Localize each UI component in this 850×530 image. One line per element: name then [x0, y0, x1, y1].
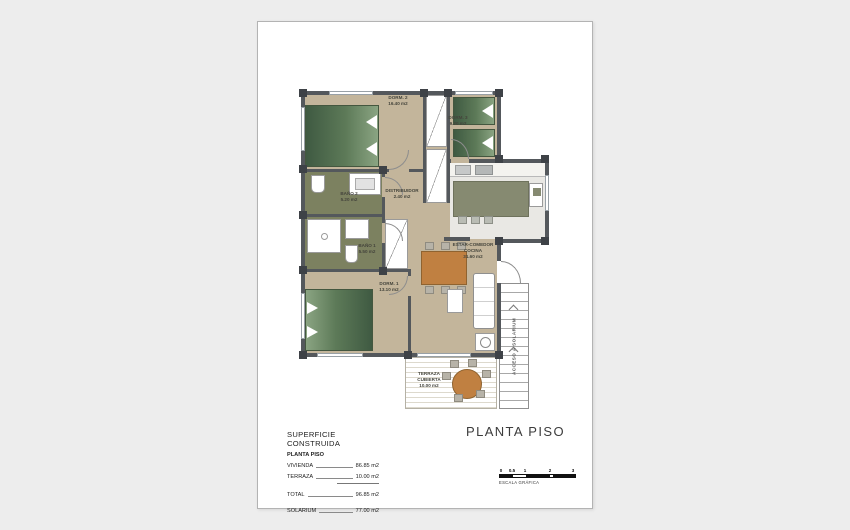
summary-row: TOTAL 96.85 m2	[287, 492, 379, 498]
bar-stool	[458, 216, 467, 224]
kitchen-stove	[475, 165, 493, 175]
room-label-estar-comedor: ESTAR-COMEDOR COCINA 31.60 m2	[453, 242, 494, 261]
pillow-icon	[482, 136, 493, 150]
terrace-chair	[450, 360, 459, 368]
pillar	[420, 89, 428, 97]
kitchen-side-sink	[529, 183, 543, 207]
scale-caption: ESCALA GRÁFICA	[499, 480, 576, 485]
door-opening	[451, 159, 469, 163]
room-area: 2.40 m2	[385, 194, 418, 200]
room-area: 13.10 m2	[379, 287, 398, 293]
wall-segment	[409, 169, 423, 172]
scale-tick: 1	[524, 468, 527, 473]
pillar	[299, 165, 307, 173]
surface-summary: SUPERFICIE CONSTRUIDA PLANTA PISO VIVIEN…	[287, 430, 379, 514]
pillar	[299, 351, 307, 359]
scale-segment	[500, 475, 513, 477]
pillow-icon	[366, 142, 377, 156]
summary-row: VIVIENDA 86.85 m2	[287, 463, 379, 469]
scale-tick: 3	[572, 468, 575, 473]
terrace-chair	[454, 394, 463, 402]
dining-chair	[425, 242, 434, 250]
scale-segment	[553, 475, 575, 477]
dorm1-double-bed	[305, 289, 373, 351]
scale-segment	[513, 475, 526, 477]
dorm2-double-bed	[305, 105, 379, 167]
terrace-chair	[468, 359, 477, 367]
leader-line	[316, 478, 353, 479]
leader-line	[308, 496, 353, 497]
wall-segment	[497, 91, 501, 163]
row-value: 86.85 m2	[356, 463, 379, 469]
room-label-dorm2: DORM. 2 16.40 m2	[388, 95, 407, 107]
room-area: 5.20 m2	[340, 197, 357, 203]
row-value: 10.00 m2	[356, 474, 379, 480]
pillow-icon	[307, 326, 318, 338]
room-label-dorm3: DORM. 3 9.20 m2	[448, 115, 467, 127]
scale-tick: 0.5	[509, 468, 515, 473]
leader-line	[316, 467, 353, 468]
pillar	[379, 166, 387, 174]
toilet	[311, 175, 325, 193]
pillow-icon	[482, 104, 493, 118]
scale-tick: 0	[500, 468, 503, 473]
kitchen-island	[453, 181, 529, 217]
window-opening	[301, 293, 305, 339]
summary-subtitle: PLANTA PISO	[287, 452, 379, 458]
sofa	[473, 273, 495, 329]
side-table	[475, 333, 495, 351]
pillar	[299, 89, 307, 97]
sink-basin	[355, 178, 375, 190]
wall-segment	[444, 237, 470, 241]
terrace-chair	[476, 390, 485, 398]
pillar	[299, 211, 307, 219]
lamp-icon	[480, 337, 491, 348]
room-area: 16.40 m2	[388, 101, 407, 107]
stair-label: ACCESO A SOLARIUM	[500, 284, 528, 408]
screenshot-canvas: ACCESO A SOLARIUM	[0, 0, 850, 530]
shower-drain-icon	[321, 233, 328, 240]
floor-plan-drawing: ACCESO A SOLARIUM	[301, 91, 551, 413]
door-opening	[408, 276, 411, 296]
room-label-bano2: BAÑO 2 5.20 m2	[340, 191, 357, 203]
kitchen-sink	[455, 165, 471, 175]
pillar	[444, 89, 452, 97]
wall-segment	[301, 269, 411, 272]
room-label-bano1: BAÑO 1 5.50 m2	[358, 243, 375, 255]
wardrobe	[426, 149, 447, 203]
bar-stool	[484, 216, 493, 224]
summary-title: SUPERFICIE CONSTRUIDA	[287, 430, 379, 448]
scale-tick: 2	[549, 468, 552, 473]
row-label: VIVIENDA	[287, 463, 313, 469]
wall-segment	[301, 169, 389, 172]
room-label-distribuidor: DISTRIBUIDOR 2.40 m2	[385, 188, 418, 200]
sum-divider	[337, 483, 379, 484]
summary-row: SOLARIUM 77.00 m2	[287, 508, 379, 514]
row-label: TOTAL	[287, 492, 305, 498]
wardrobe	[426, 95, 447, 147]
pillar	[495, 351, 503, 359]
room-label-dorm1: DORM. 1 13.10 m2	[379, 281, 398, 293]
scale-segment	[526, 475, 550, 477]
scale-ticks: 0 0.5 1 2 3	[499, 468, 576, 474]
pillar	[379, 267, 387, 275]
dining-chair	[425, 286, 434, 294]
pillow-icon	[366, 115, 377, 129]
door-arc	[501, 261, 521, 283]
pillar	[404, 351, 412, 359]
shower	[307, 219, 341, 253]
room-area: 5.50 m2	[358, 249, 375, 255]
window-opening	[545, 175, 549, 211]
window-opening	[301, 107, 305, 151]
page-title: PLANTA PISO	[466, 424, 565, 439]
pillar	[541, 237, 549, 245]
terrace-chair	[442, 372, 451, 380]
plan-sheet: ACCESO A SOLARIUM	[257, 21, 593, 509]
row-value: 77.00 m2	[356, 508, 379, 514]
terrace-chair	[482, 370, 491, 378]
room-label-terraza: TERRAZA CUBIERTA 10.00 m2	[417, 371, 440, 390]
toilet	[345, 245, 358, 263]
bathroom-sink	[345, 219, 369, 239]
window-opening	[455, 91, 493, 95]
pillar	[495, 237, 503, 245]
summary-row: TERRAZA 10.00 m2	[287, 474, 379, 480]
sliding-door-opening	[417, 353, 471, 357]
wall-segment	[423, 91, 426, 203]
wall-segment	[447, 91, 450, 203]
pillar	[299, 266, 307, 274]
room-area: 31.60 m2	[453, 254, 494, 260]
pillar	[495, 155, 503, 163]
pillow-icon	[307, 302, 318, 314]
graphic-scale: 0 0.5 1 2 3 ESCALA GRÁFICA	[499, 468, 576, 485]
row-label: SOLARIUM	[287, 508, 316, 514]
row-value: 96.85 m2	[356, 492, 379, 498]
pillar	[495, 89, 503, 97]
bar-stool	[471, 216, 480, 224]
solarium-staircase: ACCESO A SOLARIUM	[499, 283, 529, 409]
room-area: 10.00 m2	[417, 383, 440, 389]
leader-line	[319, 512, 352, 513]
room-area: 9.20 m2	[448, 121, 467, 127]
pillar	[541, 155, 549, 163]
dining-chair	[441, 242, 450, 250]
row-label: TERRAZA	[287, 474, 313, 480]
wall-segment	[301, 214, 385, 217]
scale-bar	[499, 474, 576, 478]
sink-basin	[533, 188, 541, 196]
window-opening	[329, 91, 373, 95]
wall-segment	[497, 239, 501, 357]
window-opening	[317, 353, 363, 357]
coffee-table	[447, 289, 463, 313]
